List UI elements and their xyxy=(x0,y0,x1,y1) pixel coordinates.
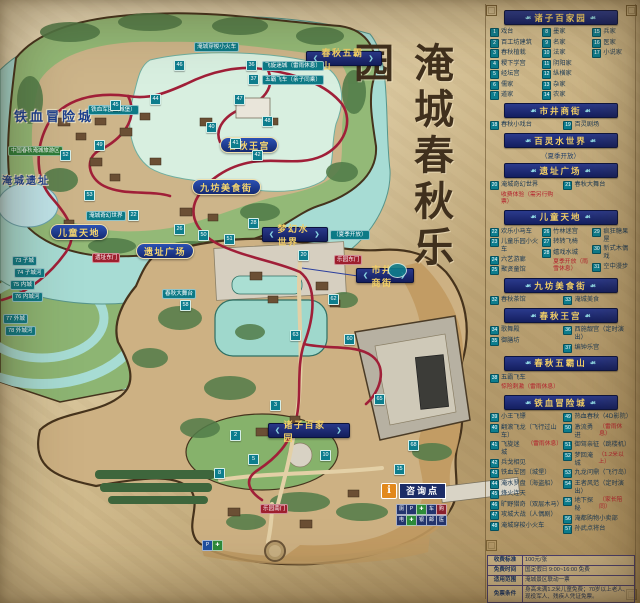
legend-item-label: 春秋大舞台 xyxy=(574,181,605,189)
legend-item-number: 35 xyxy=(490,337,499,346)
legend-item-label: 墨家 xyxy=(553,28,565,36)
attraction-tag: 春秋大舞台 xyxy=(162,289,196,299)
legend-column: 20淹城奇幻世界收费体验（需另行购票） xyxy=(490,181,561,207)
ring-badge: 74 子城河 xyxy=(14,268,45,278)
legend-item-number: 36 xyxy=(563,326,572,335)
legend-item-number: 37 xyxy=(563,344,572,353)
legend-section: 遗址广场20淹城奇幻世界收费体验（需另行购票）21春秋大舞台 xyxy=(488,163,633,207)
legend-item-label: 西施靓宫（定时演出） xyxy=(574,326,631,342)
map-marker: 44 xyxy=(150,94,161,105)
legend-item-number: 12 xyxy=(542,70,551,79)
legend-item-number: 1 xyxy=(490,28,499,37)
legend-item: 24六艺游廊 xyxy=(490,256,540,265)
info-table-value: 淹城景区联动一票 xyxy=(523,576,635,586)
gate-badge: 遗址东门 xyxy=(92,253,120,263)
legend-item-label: 旷野猎奇（双层木马） xyxy=(501,501,561,509)
map-marker: 47 xyxy=(234,94,245,105)
legend-item: 29疯狂糖果屋 xyxy=(592,228,631,244)
legend-item-label: 欢乐小马车 xyxy=(501,228,532,236)
legend-item-label: 小王飞镖 xyxy=(501,413,526,421)
gate-badge: 乐园东门 xyxy=(334,255,362,265)
legend-item: 37编钟乐宫 xyxy=(563,344,631,353)
legend-item-label: 五霸飞车 xyxy=(501,374,526,382)
legend-item-label: 兵家 xyxy=(603,28,615,36)
info-table-value: 100元/张 xyxy=(523,556,635,566)
map-marker: 46 xyxy=(174,60,185,71)
legend-item: 51御驾亲征（跳楼机） xyxy=(563,441,631,450)
legend-item-number: 4 xyxy=(490,60,499,69)
legend-item-number: 42 xyxy=(490,459,499,468)
legend-section-title: 铁血冒险城 xyxy=(504,395,618,410)
legend-item-label: 聚贤童馆 xyxy=(501,266,526,274)
legend-item: 44淹水罗盘（海盗船） xyxy=(490,480,561,489)
legend-item: 2百工坊建筑 xyxy=(490,39,540,48)
map-marker: 53 xyxy=(84,190,95,201)
legend-item-warning: （雷雨休息） xyxy=(599,424,631,438)
legend-item: 40翻滚飞龙（飞行过山车） xyxy=(490,424,561,440)
legend-item-label: 烽火连天 xyxy=(501,490,526,498)
legend-columns: 32春秋茶馆33淹城美食 xyxy=(488,296,633,305)
map-overlay: 春秋五霸山梦幻水世界市井商街诸子百家园春秋王宫九坊美食街儿童天地遗址广场铁血冒险… xyxy=(0,0,485,603)
legend-item-number: 46 xyxy=(490,501,499,510)
legend-item-number: 17 xyxy=(592,49,601,58)
attraction-tag: 五霸飞车（亲子同乘） xyxy=(262,75,324,85)
legend-item-number: 44 xyxy=(490,480,499,489)
map-marker: 8 xyxy=(214,468,225,479)
legend-item: 33淹城美食 xyxy=(563,296,631,305)
ring-badge: 77 外城 xyxy=(3,314,28,324)
ticket-info-table: 收费标准100元/张免费时间国定假日 9:00~16:00 免费适用范围淹城景区… xyxy=(487,555,635,603)
legend-item: 7道家 xyxy=(490,91,540,100)
legend-item-number: 6 xyxy=(490,81,499,90)
map-marker: 49 xyxy=(94,140,105,151)
legend-item: 12纵横家 xyxy=(542,70,590,79)
legend-item-number: 39 xyxy=(490,413,499,422)
info-table-row: 收费标准100元/张 xyxy=(488,556,635,566)
legend-item-number: 28 xyxy=(542,249,551,258)
map-marker: 42 xyxy=(252,150,263,161)
legend-item: 8墨家 xyxy=(542,28,590,37)
legend-columns: 22欢乐小马车23儿童乐园小火车24六艺游廊25聚贤童馆26竹林迷宫27转转飞椅… xyxy=(488,228,633,276)
legend-column: 26竹林迷宫27转转飞椅28嬉戏水城夏季开放（雨雪休息） xyxy=(542,228,590,276)
legend-item-label: 淹城奇幻世界 xyxy=(501,181,538,189)
legend-item: 32春秋茶馆 xyxy=(490,296,561,305)
legend-item: 23儿童乐园小火车 xyxy=(490,238,540,254)
legend-item-number: 5 xyxy=(490,70,499,79)
legend-section: 百灵水世界（夏季开放） xyxy=(488,133,633,160)
map-marker: 65 xyxy=(374,394,385,405)
facility-icon: 购 xyxy=(436,504,447,515)
legend-item: 41飞旋迷城（雷雨休息） xyxy=(490,441,561,457)
legend-item-number: 25 xyxy=(490,266,499,275)
legend-item-label: 稷下学宫 xyxy=(501,60,526,68)
park-map-poster: { "title": "淹城春秋乐园", "map": { "area_labe… xyxy=(0,0,640,603)
legend-item: 54王者风范（定时演出） xyxy=(563,480,631,496)
info-table-key: 免费时间 xyxy=(488,566,523,576)
legend-item-number: 47 xyxy=(490,511,499,520)
legend-item: 4稷下学宫 xyxy=(490,60,540,69)
legend-item: 20淹城奇幻世界 xyxy=(490,181,561,190)
legend-item: 42兵戈相见 xyxy=(490,459,561,468)
legend-item-label: 儿童乐园小火车 xyxy=(501,238,540,254)
legend-item-number: 16 xyxy=(592,39,601,48)
legend-item: 35御膳坊 xyxy=(490,337,561,346)
legend-section-title: 诸子百家园 xyxy=(504,10,618,25)
map-marker: 10 xyxy=(320,450,331,461)
legend-item-label: 春秋小戏台 xyxy=(501,121,532,129)
legend-item-label: 淹城美食 xyxy=(574,296,599,304)
legend-item-label: 歌舞殿 xyxy=(501,326,520,334)
legend-item: 53九龙问鼎（飞行岛） xyxy=(563,469,631,478)
legend-section-title: 春秋王宫 xyxy=(504,308,618,323)
legend-item-number: 13 xyxy=(542,81,551,90)
ring-badge: 75 内城 xyxy=(10,280,35,290)
legend-item-number: 31 xyxy=(592,263,601,272)
legend-item-number: 26 xyxy=(542,228,551,237)
legend-item: 50激流勇进（雷雨休息） xyxy=(563,424,631,440)
legend-item-warning: 收费体验（需另行购票） xyxy=(501,192,561,206)
legend-item-label: 法家 xyxy=(553,49,565,57)
legend-item: 9名家 xyxy=(542,39,590,48)
legend-item-label: 嬉戏水城 xyxy=(553,249,578,257)
legend-item: 21春秋大舞台 xyxy=(563,181,631,190)
legend-item-number: 8 xyxy=(542,28,551,37)
gate-badge: 乐园南门 xyxy=(260,504,288,514)
legend-item: 1戏台 xyxy=(490,28,540,37)
legend-column: 18春秋小戏台 xyxy=(490,121,561,130)
legend-item-warning: （家长陪同） xyxy=(599,497,631,511)
legend-item-number: 32 xyxy=(490,296,499,305)
legend-item-label: 杂家 xyxy=(553,81,565,89)
legend-item-label: 铁血军团（城堡） xyxy=(501,469,551,477)
legend-item-label: 兵戈相见 xyxy=(501,459,526,467)
map-marker: 15 xyxy=(394,464,405,475)
legend-item-label: 春秋茶馆 xyxy=(501,296,526,304)
legend-item: 15兵家 xyxy=(592,28,631,37)
legend-item: 52梦回淹城（1.2米以上） xyxy=(563,452,631,468)
legend-item-number: 15 xyxy=(592,28,601,37)
legend-item-number: 23 xyxy=(490,238,499,247)
info-icon: i xyxy=(381,483,397,499)
legend-item: 18春秋小戏台 xyxy=(490,121,561,130)
legend-column: 34歌舞殿35御膳坊 xyxy=(490,326,561,353)
info-table-key: 免票条件 xyxy=(488,586,523,603)
area-label-pill: 春秋王宫 xyxy=(220,137,278,153)
legend-item: 27转转飞椅 xyxy=(542,238,590,247)
legend-item-number: 21 xyxy=(563,181,572,190)
legend-column: 22欢乐小马车23儿童乐园小火车24六艺游廊25聚贤童馆 xyxy=(490,228,540,276)
seal-ornament xyxy=(388,263,407,278)
legend-item: 11阴阳家 xyxy=(542,60,590,69)
legend-item: 55地下探秘（家长陪同） xyxy=(563,497,631,513)
legend-column: 38五霸飞车惊险刺激（雷雨休息） xyxy=(490,374,630,393)
attraction-tag: 淹城穿梭小火车 xyxy=(194,42,239,52)
legend-column: 1戏台2百工坊建筑3春秋植栽4稷下学宫5经坛宫6儒家7道家 xyxy=(490,28,540,100)
compass-ornament xyxy=(264,540,286,562)
legend-item: 19百灵剧场 xyxy=(563,121,631,130)
attraction-tag: 淹城奇幻世界 xyxy=(86,211,126,221)
ring-badge: 73 子城 xyxy=(12,256,37,266)
legend-item-label: 地下探秘 xyxy=(574,497,597,513)
map-marker: 2 xyxy=(230,430,241,441)
legend-item-number: 54 xyxy=(563,480,572,489)
legend-column: 21春秋大舞台 xyxy=(563,181,631,207)
legend-columns: 1戏台2百工坊建筑3春秋植栽4稷下学宫5经坛宫6儒家7道家8墨家9名家10法家1… xyxy=(488,28,633,100)
legend-item-number: 3 xyxy=(490,49,499,58)
legend-item: 48淹城穿梭小火车 xyxy=(490,522,561,531)
map-marker: 62 xyxy=(328,294,339,305)
parking-cluster: P✚ xyxy=(202,540,221,551)
map-marker: 63 xyxy=(290,330,301,341)
legend-item: 17小说家 xyxy=(592,49,631,58)
legend-columns: 18春秋小戏台19百灵剧场 xyxy=(488,121,633,130)
map-marker: 5 xyxy=(248,454,259,465)
legend-item-number: 53 xyxy=(563,469,572,478)
legend-item-number: 56 xyxy=(563,515,572,524)
legend-item: 57孙武点将台 xyxy=(563,525,631,534)
legend-item-warning: 夏季开放（雨雪休息） xyxy=(553,259,590,273)
legend-item: 26竹林迷宫 xyxy=(542,228,590,237)
legend-item-label: 百工坊建筑 xyxy=(501,39,532,47)
info-table-key: 适用范围 xyxy=(488,576,523,586)
legend-item-number: 11 xyxy=(542,60,551,69)
legend-item: 10法家 xyxy=(542,49,590,58)
info-point-label: 咨询点 xyxy=(399,483,446,499)
legend-item-number: 7 xyxy=(490,91,499,100)
legend-item-number: 43 xyxy=(490,469,499,478)
legend-item-label: 竹林迷宫 xyxy=(553,228,578,236)
legend-item-number: 19 xyxy=(563,121,572,130)
legend-item-number: 10 xyxy=(542,49,551,58)
facility-icon: 医 xyxy=(436,515,447,526)
legend-column: 19百灵剧场 xyxy=(563,121,631,130)
legend-item: 30新式木偶戏 xyxy=(592,245,631,261)
facility-icon: ✚ xyxy=(212,540,223,551)
ring-badge: 78 外城河 xyxy=(5,326,36,336)
legend-item-number: 41 xyxy=(490,441,499,450)
legend-item-number: 27 xyxy=(542,238,551,247)
legend-column: 36西施靓宫（定时演出）37编钟乐宫 xyxy=(563,326,631,353)
legend-item: 45烽火连天 xyxy=(490,490,561,499)
map-marker: 26 xyxy=(174,224,185,235)
legend-item-label: 王者风范（定时演出） xyxy=(574,480,631,496)
legend-section-title: 儿童天地 xyxy=(504,210,618,225)
legend-section-subtitle: （夏季开放） xyxy=(488,150,633,160)
map-marker: 3 xyxy=(270,400,281,411)
legend-item: 6儒家 xyxy=(490,81,540,90)
area-label-banner: 梦幻水世界 xyxy=(262,227,328,242)
legend-section: 诸子百家园1戏台2百工坊建筑3春秋植栽4稷下学宫5经坛宫6儒家7道家8墨家9名家… xyxy=(488,10,633,100)
legend-item-label: 百灵剧场 xyxy=(574,121,599,129)
attraction-tag: 飞旋迷城（雷雨休息） xyxy=(262,61,324,71)
legend-item-number: 14 xyxy=(542,91,551,100)
legend-item-label: 戏台 xyxy=(501,28,513,36)
map-marker: 41 xyxy=(230,138,241,149)
map-marker: 52 xyxy=(60,150,71,161)
legend-column: 8墨家9名家10法家11阴阳家12纵横家13杂家14农家 xyxy=(542,28,590,100)
legend-item-number: 29 xyxy=(592,228,601,237)
legend-item-number: 22 xyxy=(490,228,499,237)
legend-item-number: 20 xyxy=(490,181,499,190)
legend-section-title: 春秋五霸山 xyxy=(504,356,618,371)
legend-columns: 39小王飞镖40翻滚飞龙（飞行过山车）41飞旋迷城（雷雨休息）42兵戈相见43铁… xyxy=(488,413,633,534)
legend-item-number: 50 xyxy=(563,424,572,433)
season-tag: （夏季开放） xyxy=(330,230,370,240)
legend-item-number: 38 xyxy=(490,374,499,383)
map-marker: 50 xyxy=(198,230,209,241)
legend-item-number: 34 xyxy=(490,326,499,335)
legend-item-label: 新式木偶戏 xyxy=(603,245,631,261)
area-label-pill: 九坊美食街 xyxy=(192,179,261,195)
legend-item: 49热血春秋（4D影院） xyxy=(563,413,631,422)
legend-item-label: 梦回淹城 xyxy=(574,452,596,468)
legend-item-number: 33 xyxy=(563,296,572,305)
map-marker: 58 xyxy=(180,300,191,311)
legend-item: 31空中漫步 xyxy=(592,263,631,272)
map-marker: 20 xyxy=(298,250,309,261)
legend-item-number: 2 xyxy=(490,39,499,48)
legend-item-label: 飞旋迷城 xyxy=(501,441,525,457)
legend-item-label: 道家 xyxy=(501,91,513,99)
map-marker: 37 xyxy=(248,74,259,85)
legend-section: 春秋五霸山38五霸飞车惊险刺激（雷雨休息） xyxy=(488,356,633,393)
legend-item: 36西施靓宫（定时演出） xyxy=(563,326,631,342)
legend-item-warning: 惊险刺激（雷雨休息） xyxy=(501,384,630,391)
map-marker: 48 xyxy=(262,116,273,127)
info-table-key: 收费标准 xyxy=(488,556,523,566)
area-label-pill: 遗址广场 xyxy=(136,243,194,259)
legend-item-number: 49 xyxy=(563,413,572,422)
legend-item-label: 淹都购物小卖部 xyxy=(574,515,617,523)
legend-item: 39小王飞镖 xyxy=(490,413,561,422)
legend-section-title: 遗址广场 xyxy=(504,163,618,178)
legend-item-label: 农家 xyxy=(553,91,565,99)
legend-section: 市井商街18春秋小戏台19百灵剧场 xyxy=(488,103,633,130)
legend-item: 46旷野猎奇（双层木马） xyxy=(490,501,561,510)
legend-item: 43铁血军团（城堡） xyxy=(490,469,561,478)
legend-item: 47攻城大战（人偶剧） xyxy=(490,511,561,520)
legend-item-label: 热血春秋（4D影院） xyxy=(574,413,631,421)
area-label-text: 铁血冒险城 xyxy=(14,106,94,125)
legend-item-label: 纵横家 xyxy=(553,70,572,78)
legend-item-label: 阴阳家 xyxy=(553,60,572,68)
legend-item-label: 御膳坊 xyxy=(501,337,520,345)
legend-section: 儿童天地22欢乐小马车23儿童乐园小火车24六艺游廊25聚贤童馆26竹林迷宫27… xyxy=(488,210,633,276)
legend-item-label: 儒家 xyxy=(501,81,513,89)
legend-item-label: 九龙问鼎（飞行岛） xyxy=(574,469,630,477)
info-table-value: 身高未满1.2米儿童免费；70岁以上老人、现役军人、残疾人凭证免票。 xyxy=(523,586,635,603)
legend-item: 14农家 xyxy=(542,91,590,100)
legend-item-label: 孙武点将台 xyxy=(574,525,605,533)
legend-item-label: 经坛宫 xyxy=(501,70,520,78)
legend-item-warning: （雷雨休息） xyxy=(527,441,561,448)
legend-item: 13杂家 xyxy=(542,81,590,90)
legend-item: 38五霸飞车 xyxy=(490,374,630,383)
legend-item-label: 小说家 xyxy=(603,49,622,57)
legend-item-number: 48 xyxy=(490,522,499,531)
legend-item-number: 40 xyxy=(490,424,499,433)
legend-column: 32春秋茶馆 xyxy=(490,296,561,305)
legend-column: 29疯狂糖果屋30新式木偶戏31空中漫步 xyxy=(592,228,631,276)
legend-section: 九坊美食街32春秋茶馆33淹城美食 xyxy=(488,278,633,305)
legend-item: 28嬉戏水城 xyxy=(542,249,590,258)
corner-ornament xyxy=(486,540,497,551)
legend-column: 15兵家16医家17小说家 xyxy=(592,28,631,100)
map-marker: 51 xyxy=(224,234,235,245)
legend-item-label: 转转飞椅 xyxy=(553,238,578,246)
info-table-value: 国定假日 9:00~16:00 免费 xyxy=(523,566,635,576)
legend-item-label: 医家 xyxy=(603,39,615,47)
legend-item-warning: （1.2米以上） xyxy=(598,452,631,466)
legend-item-number: 30 xyxy=(592,245,601,254)
map-marker: 45 xyxy=(110,100,121,111)
legend-item: 5经坛宫 xyxy=(490,70,540,79)
legend-item-label: 春秋植栽 xyxy=(501,49,526,57)
legend-item-label: 激流勇进 xyxy=(574,424,597,440)
legend-panel: 诸子百家园1戏台2百工坊建筑3春秋植栽4稷下学宫5经坛宫6儒家7道家8墨家9名家… xyxy=(485,4,636,599)
info-table-row: 免费时间国定假日 9:00~16:00 免费 xyxy=(488,566,635,576)
legend-item: 3春秋植栽 xyxy=(490,49,540,58)
map-marker: 22 xyxy=(128,210,139,221)
area-label-text: 淹城遗址 xyxy=(2,172,50,187)
map-marker: 60 xyxy=(344,334,355,345)
legend-item-number: 24 xyxy=(490,256,499,265)
legend-column: 49热血春秋（4D影院）50激流勇进（雷雨休息）51御驾亲征（跳楼机）52梦回淹… xyxy=(563,413,631,534)
legend-section-title: 百灵水世界 xyxy=(504,133,618,148)
scenic-area-badge: 中国春秋淹城旅游区 xyxy=(8,146,63,156)
legend-item: 34歌舞殿 xyxy=(490,326,561,335)
legend-item-label: 翻滚飞龙（飞行过山车） xyxy=(501,424,561,440)
legend-item: 22欢乐小马车 xyxy=(490,228,540,237)
legend-item-number: 9 xyxy=(542,39,551,48)
legend-item: 16医家 xyxy=(592,39,631,48)
legend-item-number: 51 xyxy=(563,441,572,450)
info-table-row: 免票条件身高未满1.2米儿童免费；70岁以上老人、现役军人、残疾人凭证免票。 xyxy=(488,586,635,603)
info-point: i咨询点 xyxy=(381,483,446,499)
legend-item-label: 御驾亲征（跳楼机） xyxy=(574,441,630,449)
legend-column: 39小王飞镖40翻滚飞龙（飞行过山车）41飞旋迷城（雷雨休息）42兵戈相见43铁… xyxy=(490,413,561,534)
legend-section: 铁血冒险城39小王飞镖40翻滚飞龙（飞行过山车）41飞旋迷城（雷雨休息）42兵戈… xyxy=(488,395,633,534)
corner-ornament xyxy=(626,5,637,16)
legend-item-number: 18 xyxy=(490,121,499,130)
facility-icon-row: 电✚银邮医 xyxy=(396,515,445,526)
legend-item-label: 六艺游廊 xyxy=(501,256,526,264)
legend-item-label: 名家 xyxy=(553,39,565,47)
legend-item-number: 57 xyxy=(563,525,572,534)
legend-item-label: 淹水罗盘（海盗船） xyxy=(501,480,557,488)
legend-item-label: 空中漫步 xyxy=(603,263,628,271)
area-label-banner: 诸子百家园 xyxy=(268,423,350,438)
legend-column: 33淹城美食 xyxy=(563,296,631,305)
map-marker: 68 xyxy=(408,440,419,451)
legend-columns: 34歌舞殿35御膳坊36西施靓宫（定时演出）37编钟乐宫 xyxy=(488,326,633,353)
legend-item: 56淹都购物小卖部 xyxy=(563,515,631,524)
facility-icon-row: 厕P✚车购 xyxy=(396,504,445,515)
legend-item-label: 淹城穿梭小火车 xyxy=(501,522,544,530)
legend-section: 春秋王宫34歌舞殿35御膳坊36西施靓宫（定时演出）37编钟乐宫 xyxy=(488,308,633,353)
legend-item-number: 55 xyxy=(563,497,572,506)
legend-item: 25聚贤童馆 xyxy=(490,266,540,275)
map-marker: 40 xyxy=(206,122,217,133)
corner-ornament xyxy=(486,5,497,16)
map-marker: 28 xyxy=(248,218,259,229)
legend-section-title: 九坊美食街 xyxy=(504,278,618,293)
legend-columns: 38五霸飞车惊险刺激（雷雨休息） xyxy=(488,374,633,393)
area-label-pill: 儿童天地 xyxy=(50,224,108,240)
legend-item-number: 45 xyxy=(490,490,499,499)
info-table-row: 适用范围淹城景区联动一票 xyxy=(488,576,635,586)
legend-section-title: 市井商街 xyxy=(504,103,618,118)
